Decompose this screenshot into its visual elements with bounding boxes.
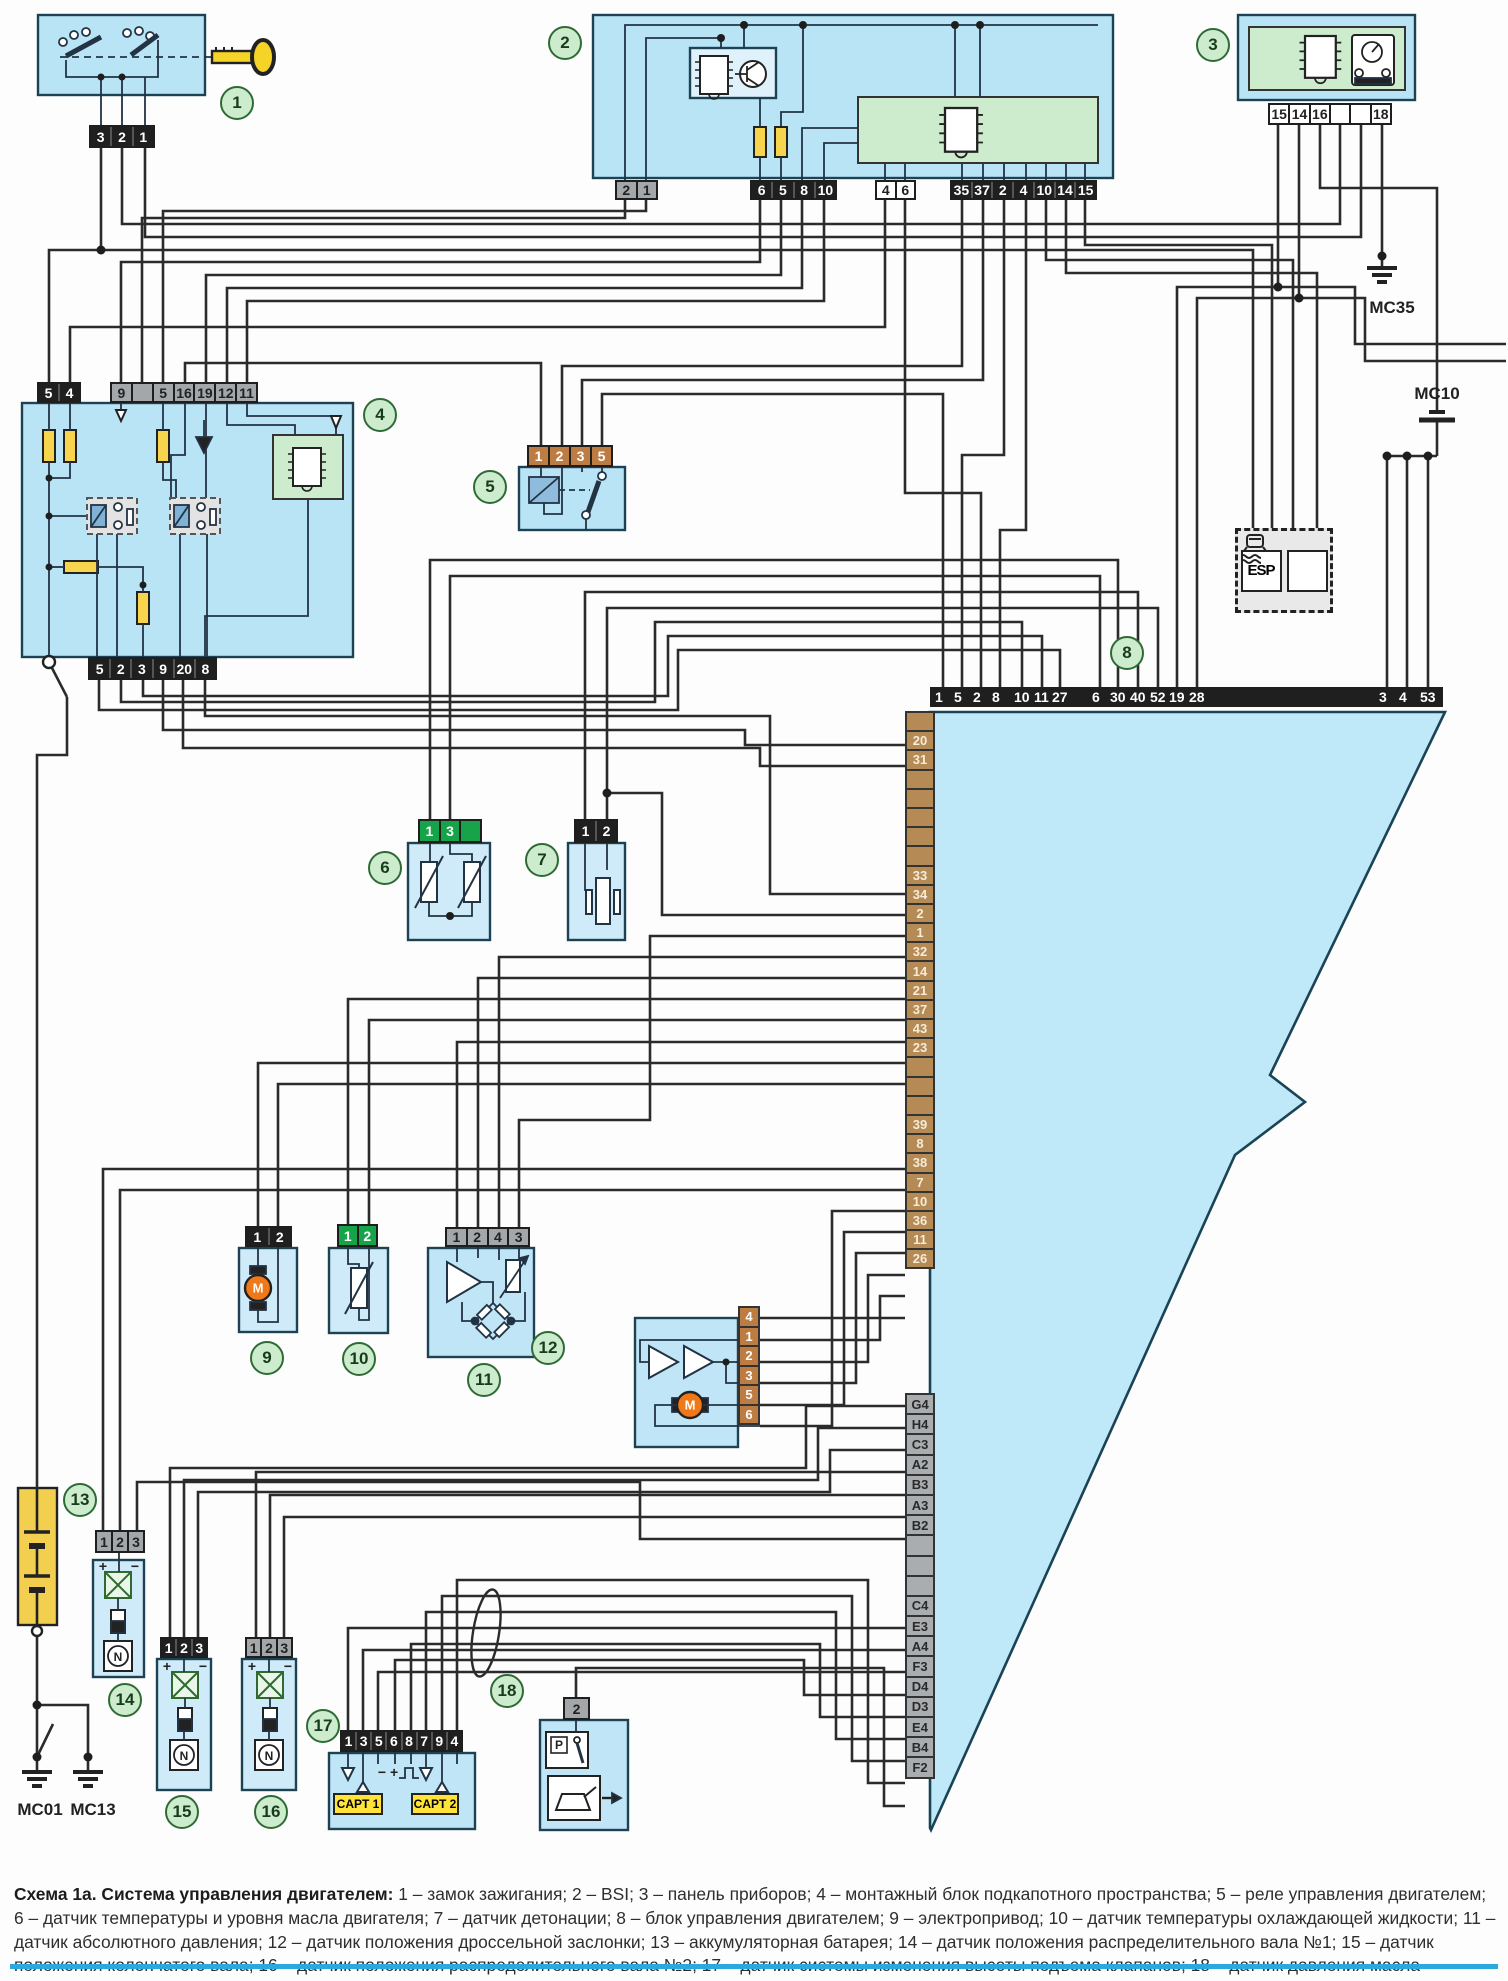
pin-cell: 3: [91, 127, 110, 146]
pin-cell: [459, 821, 480, 841]
pin-cell: 8: [793, 182, 814, 198]
pin-cell: [1329, 105, 1349, 123]
pin-cell: G4: [905, 1393, 935, 1415]
relay-connector: 1235: [527, 445, 613, 467]
pin-cell: B4: [905, 1736, 935, 1758]
coolant-sensor-connector: 12: [337, 1224, 378, 1247]
label-1: 1: [220, 86, 254, 120]
pin-cell: 11: [905, 1229, 935, 1250]
label-14: 14: [108, 1683, 142, 1717]
pin-cell: [905, 1534, 935, 1556]
pin-cell: [905, 807, 935, 828]
label-6: 6: [368, 851, 402, 885]
pin-cell: 1: [162, 1639, 175, 1656]
pin-cell: C3: [905, 1433, 935, 1455]
oil-sensor-connector: 13: [418, 819, 482, 843]
pin-cell: 15: [1074, 182, 1095, 198]
pin-cell: [131, 384, 152, 401]
pin-cell: 2: [260, 1639, 275, 1656]
pin-cell: 26: [905, 1248, 935, 1269]
pin-cell: 3: [127, 1532, 143, 1551]
pin-cell: 5: [771, 182, 792, 198]
pin-cell: 1: [447, 1229, 466, 1245]
pin-cell: 9: [112, 384, 131, 401]
bottom-rule: [10, 1964, 1498, 1969]
pin-cell: 1: [247, 1228, 268, 1245]
minus-16: −: [284, 1658, 292, 1674]
pin-cell: 1: [420, 821, 439, 841]
pin-cell: 2: [595, 821, 616, 841]
pin-cell: 1: [247, 1639, 260, 1656]
pin-cell: 38: [905, 1152, 935, 1173]
pin-cell: 1: [576, 821, 595, 841]
pin-cell: 5: [90, 659, 109, 678]
n-label-16: N: [265, 1749, 274, 1763]
ecu-top-pin: 2: [973, 689, 981, 705]
pin-cell: 12: [214, 384, 235, 401]
label-13: 13: [63, 1483, 97, 1517]
plus-14: +: [99, 1558, 107, 1574]
pin-cell: 32: [905, 941, 935, 962]
pin-cell: D3: [905, 1696, 935, 1718]
pin-cell: 2: [357, 1226, 377, 1245]
ground-label-mc13: МС13: [70, 1800, 115, 1820]
pin-cell: 23: [905, 1037, 935, 1058]
car-skid-icon: [1238, 531, 1272, 565]
cable-bundle-marker: [466, 1588, 505, 1679]
pin-cell: 14: [1054, 182, 1075, 198]
pin-cell: F2: [905, 1756, 935, 1778]
motor-label-9: M: [253, 1281, 264, 1296]
plus-15: +: [163, 1658, 171, 1674]
pin-cell: 15: [1270, 105, 1288, 123]
label-8: 8: [1110, 636, 1144, 670]
pin-cell: 4: [1012, 182, 1033, 198]
pin-cell: 10: [905, 1191, 935, 1212]
plus-16: +: [248, 1658, 256, 1674]
pin-cell: 1: [97, 1532, 111, 1551]
pin-cell: 1: [529, 447, 548, 465]
pin-cell: [905, 1095, 935, 1116]
ecu-left-pins-brown: 203133342132142137432339838710361126: [905, 713, 935, 1269]
pin-cell: 3: [130, 659, 151, 678]
pin-cell: 14: [905, 960, 935, 981]
pin-cell: 20: [173, 659, 194, 678]
pin-cell: A2: [905, 1454, 935, 1476]
pin-cell: F3: [905, 1655, 935, 1677]
pin-cell: 8: [401, 1732, 416, 1750]
pin-cell: E3: [905, 1615, 935, 1637]
pin-cell: 1: [339, 1226, 357, 1245]
wiring-svg: [0, 0, 1508, 1981]
pin-cell: [905, 845, 935, 866]
label-5: 5: [473, 470, 507, 504]
bsi-connector-black: 65810: [750, 180, 837, 200]
pin-cell: 9: [431, 1732, 446, 1750]
pin-cell: B3: [905, 1474, 935, 1496]
bsi-connector-white: 46: [875, 180, 916, 200]
ecu-top-pin: 3: [1379, 689, 1387, 705]
pin-cell: 3: [738, 1365, 760, 1387]
pin-cell: 2: [110, 127, 131, 146]
pin-cell: 6: [752, 182, 771, 198]
pin-cell: 2: [565, 1699, 588, 1718]
n-label-15: N: [180, 1749, 189, 1763]
pin-cell: 7: [416, 1732, 431, 1750]
knock-sensor-connector: 12: [574, 819, 618, 843]
pin-cell: 3: [507, 1229, 528, 1245]
pin-cell: 2: [109, 659, 130, 678]
pin-cell: 1: [738, 1326, 760, 1348]
ecu-top-pin: 4: [1399, 689, 1407, 705]
pin-cell: 18: [1370, 105, 1390, 123]
map-sensor-connector: 1243: [445, 1227, 530, 1247]
pin-cell: C4: [905, 1595, 935, 1617]
label-15: 15: [165, 1795, 199, 1829]
pin-cell: 2: [111, 1532, 127, 1551]
pin-cell: [905, 1056, 935, 1077]
ecu-top-pin: 53: [1420, 689, 1436, 705]
fusebox-connector-bottom: 5239208: [88, 657, 217, 680]
pin-cell: 6: [385, 1732, 400, 1750]
label-12: 12: [531, 1331, 565, 1365]
cam2-sensor-connector: 123: [245, 1637, 293, 1658]
pin-cell: 8: [194, 659, 215, 678]
minus-15: −: [199, 1658, 207, 1674]
fusebox-connector-gray: 9516191211: [110, 382, 258, 403]
pin-cell: 2: [905, 903, 935, 924]
p-label-18: P: [555, 1738, 563, 1752]
pin-cell: [905, 1575, 935, 1597]
ecu-top-pin: 6: [1092, 689, 1100, 705]
pin-cell: [905, 826, 935, 847]
wiring-diagram-page: 321 21 65810 46 353724101415 15141618 54…: [0, 0, 1508, 1981]
pin-cell: 39: [905, 1114, 935, 1135]
ecu-top-pin: 27: [1052, 689, 1068, 705]
pin-cell: 2: [991, 182, 1012, 198]
pin-cell: 2: [466, 1229, 487, 1245]
pin-cell: B2: [905, 1514, 935, 1536]
pin-cell: 6: [895, 182, 915, 198]
pin-cell: 4: [487, 1229, 508, 1245]
label-16: 16: [254, 1795, 288, 1829]
cam1-sensor-connector: 123: [95, 1530, 145, 1553]
pin-cell: 1: [342, 1732, 355, 1750]
pin-cell: 31: [905, 749, 935, 770]
pin-cell: 16: [1309, 105, 1329, 123]
actuator-connector: 12: [245, 1226, 292, 1247]
pin-cell: [1349, 105, 1369, 123]
pin-cell: 34: [905, 884, 935, 905]
pin-cell: 2: [738, 1345, 760, 1367]
ecu-top-pin: 5: [954, 689, 962, 705]
pin-cell: [905, 788, 935, 809]
pin-cell: 4: [446, 1732, 461, 1750]
ecu-top-pin: 11: [1034, 689, 1049, 705]
ground-label-mc01: МС01: [17, 1800, 62, 1820]
pin-cell: A4: [905, 1635, 935, 1657]
pin-cell: 4: [58, 384, 79, 401]
label-9: 9: [250, 1341, 284, 1375]
crank-sensor-connector: 123: [160, 1637, 208, 1658]
pin-cell: D4: [905, 1676, 935, 1698]
ignition-connector: 321: [89, 125, 155, 148]
label-3: 3: [1196, 28, 1230, 62]
pin-cell: 36: [905, 1210, 935, 1231]
ecu-top-pin: 8: [992, 689, 1000, 705]
ecu-top-pin: 19: [1169, 689, 1185, 705]
pin-cell: 4: [738, 1306, 760, 1328]
ecu-top-pin: 52: [1150, 689, 1166, 705]
pin-cell: 2: [548, 447, 569, 465]
pin-cell: [905, 711, 935, 732]
ecu-shape: [930, 712, 1445, 1830]
pin-cell: 33: [905, 865, 935, 886]
pin-cell: [905, 769, 935, 790]
pin-cell: 6: [738, 1404, 760, 1426]
cluster-connector: 15141618: [1268, 103, 1392, 125]
pin-cell: 1: [132, 127, 153, 146]
pin-cell: 2: [617, 182, 636, 198]
pin-cell: 37: [971, 182, 992, 198]
pin-cell: 5: [738, 1384, 760, 1406]
pin-cell: 21: [905, 980, 935, 1001]
ecu-top-connector: 1528101127630405219283453: [930, 687, 1443, 707]
pin-cell: 1: [905, 922, 935, 943]
minus-plus-17: − +: [378, 1764, 398, 1780]
pin-cell: 2: [175, 1639, 190, 1656]
throttle-pins: 412356: [738, 1308, 760, 1425]
pin-cell: 7: [905, 1172, 935, 1193]
label-10: 10: [342, 1342, 376, 1376]
pin-cell: 5: [590, 447, 611, 465]
pin-cell: 3: [355, 1732, 370, 1750]
bsi-connector-gray: 21: [615, 180, 658, 200]
bsi-connector-black2: 353724101415: [950, 180, 1097, 200]
valve-lift-connector: 13568794: [340, 1730, 463, 1752]
pin-cell: 11: [235, 384, 256, 401]
pin-cell: 5: [370, 1732, 385, 1750]
ecu-top-pin: 1: [935, 689, 943, 705]
pin-cell: 3: [191, 1639, 206, 1656]
fusebox-connector-black: 54: [37, 382, 81, 403]
pin-cell: 35: [952, 182, 971, 198]
esp-skid-icon: [1287, 550, 1328, 592]
pin-cell: 3: [276, 1639, 291, 1656]
pin-cell: 5: [152, 384, 173, 401]
n-label-14: N: [114, 1650, 123, 1664]
label-11: 11: [467, 1363, 501, 1397]
pin-cell: A3: [905, 1494, 935, 1516]
pin-cell: 19: [193, 384, 214, 401]
label-17: 17: [306, 1709, 340, 1743]
pin-cell: 2: [268, 1228, 291, 1245]
pin-cell: [905, 1076, 935, 1097]
esp-module: ESP: [1235, 528, 1333, 613]
caption-title: Схема 1а. Система управления двигателем:: [14, 1884, 393, 1904]
ecu-top-pin: 28: [1189, 689, 1205, 705]
label-4: 4: [363, 398, 397, 432]
pin-cell: 1: [636, 182, 657, 198]
capt2-box: CAPT 2: [411, 1793, 459, 1815]
pin-cell: 14: [1288, 105, 1308, 123]
label-2: 2: [548, 26, 582, 60]
pin-cell: 16: [173, 384, 194, 401]
ground-label-mc10: МС10: [1414, 384, 1459, 404]
pin-cell: 8: [905, 1133, 935, 1154]
pin-cell: H4: [905, 1413, 935, 1435]
pin-cell: 43: [905, 1018, 935, 1039]
pin-cell: 20: [905, 730, 935, 751]
pin-cell: 9: [152, 659, 173, 678]
ground-label-mc35: МС35: [1369, 298, 1414, 318]
pin-cell: 37: [905, 999, 935, 1020]
oil-pressure-connector: 2: [563, 1697, 590, 1720]
pin-cell: 10: [1033, 182, 1054, 198]
pin-cell: 3: [569, 447, 590, 465]
capt1-box: CAPT 1: [333, 1793, 383, 1815]
ecu-top-pin: 40: [1130, 689, 1146, 705]
ecu-left-pins-gray: G4H4C3A2B3A3B2C4E3A4F3D4D3E4B4F2: [905, 1395, 935, 1779]
motor-label-12: M: [685, 1398, 696, 1413]
ecu-top-pin: 30: [1110, 689, 1126, 705]
label-18: 18: [490, 1674, 524, 1708]
pin-cell: 3: [439, 821, 460, 841]
pin-cell: 4: [877, 182, 895, 198]
label-7: 7: [525, 843, 559, 877]
minus-14: −: [131, 1558, 139, 1574]
ecu-top-pin: 10: [1014, 689, 1030, 705]
pin-cell: E4: [905, 1716, 935, 1738]
pin-cell: 5: [39, 384, 58, 401]
pin-cell: 10: [814, 182, 835, 198]
pin-cell: [905, 1555, 935, 1577]
